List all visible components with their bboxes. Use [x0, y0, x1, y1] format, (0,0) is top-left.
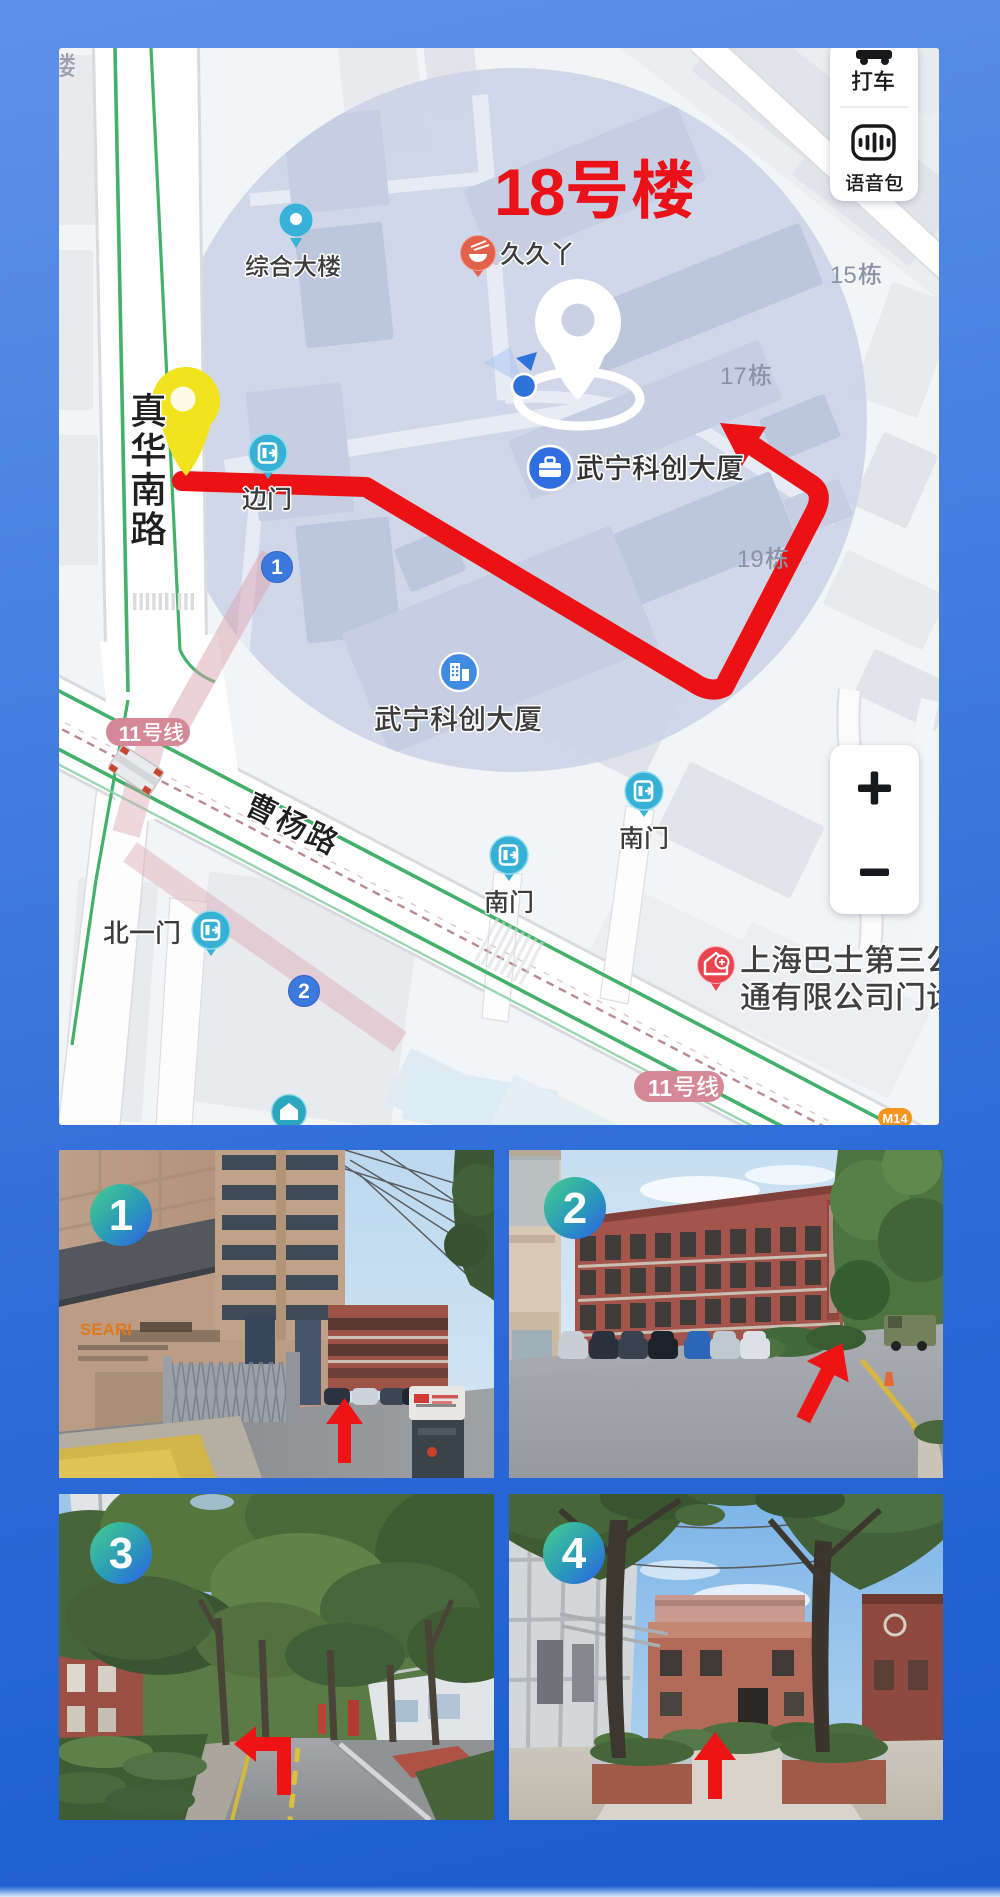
svg-text:1: 1: [271, 556, 283, 579]
svg-text:11: 11: [119, 723, 142, 746]
svg-text:17: 17: [720, 363, 747, 390]
svg-text:2: 2: [563, 1184, 587, 1233]
svg-text:SEARI: SEARI: [80, 1320, 132, 1339]
svg-text:4: 4: [562, 1529, 587, 1578]
svg-text:3: 3: [109, 1529, 133, 1578]
svg-text:19: 19: [737, 546, 764, 573]
svg-text:15: 15: [830, 262, 857, 289]
svg-text:1: 1: [109, 1191, 133, 1240]
svg-text:M14: M14: [882, 1111, 908, 1125]
svg-text:11: 11: [648, 1075, 673, 1101]
svg-text:2: 2: [298, 980, 310, 1003]
svg-text:18: 18: [494, 155, 564, 229]
